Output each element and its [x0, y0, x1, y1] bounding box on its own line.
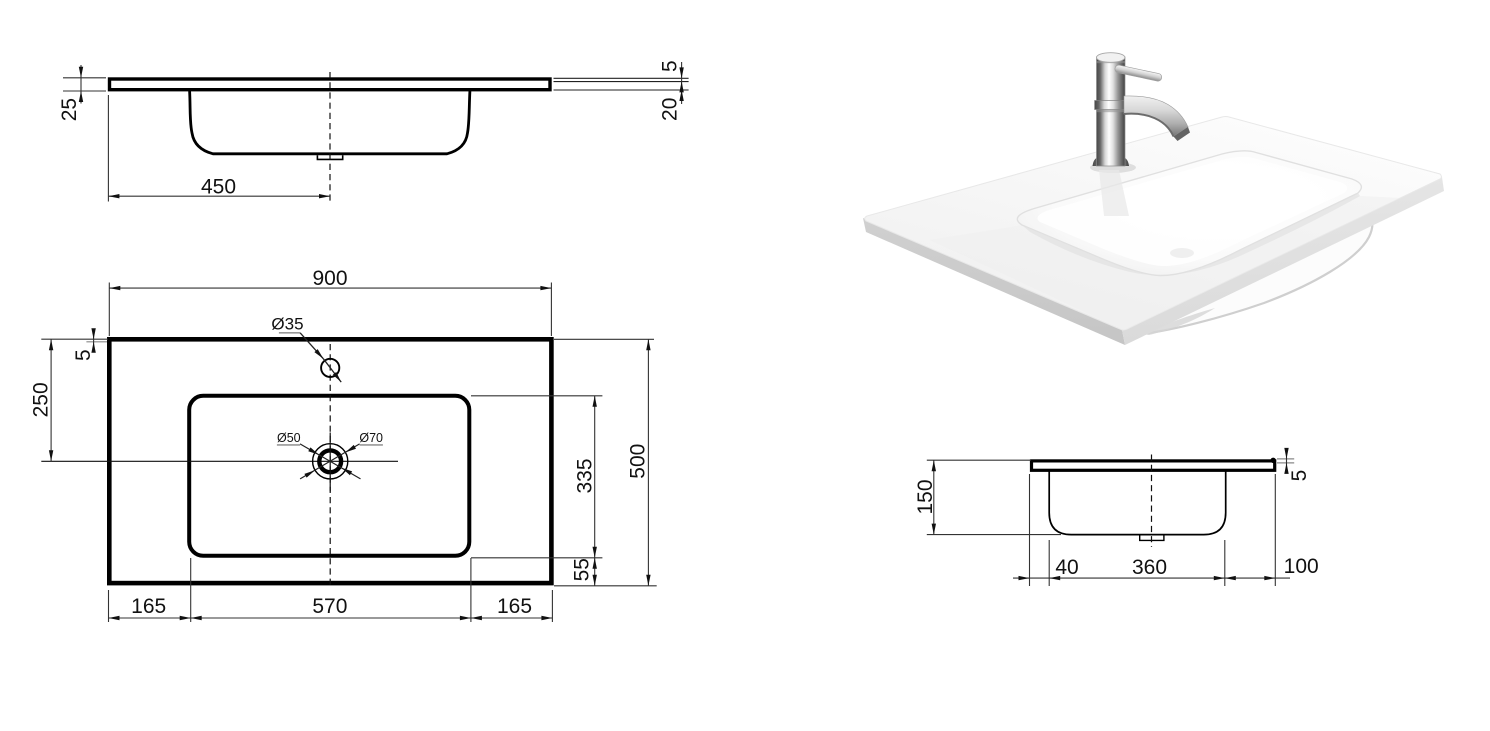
svg-text:165: 165	[497, 595, 532, 618]
svg-text:Ø70: Ø70	[359, 431, 383, 445]
svg-text:500: 500	[627, 444, 650, 479]
svg-text:Ø35: Ø35	[271, 314, 303, 333]
svg-text:55: 55	[571, 558, 594, 581]
svg-text:5: 5	[658, 60, 681, 72]
svg-text:25: 25	[58, 98, 81, 121]
svg-text:165: 165	[131, 595, 166, 618]
svg-text:Ø50: Ø50	[277, 431, 301, 445]
svg-text:40: 40	[1055, 556, 1078, 579]
svg-text:5: 5	[1288, 470, 1311, 482]
svg-text:570: 570	[312, 595, 347, 618]
svg-text:100: 100	[1284, 555, 1319, 578]
svg-text:150: 150	[914, 479, 937, 514]
svg-text:450: 450	[201, 176, 236, 199]
svg-text:335: 335	[573, 458, 596, 493]
svg-text:5: 5	[72, 349, 95, 361]
svg-text:900: 900	[312, 267, 347, 290]
svg-text:20: 20	[659, 98, 682, 121]
svg-text:360: 360	[1132, 556, 1167, 579]
svg-text:250: 250	[29, 382, 52, 417]
